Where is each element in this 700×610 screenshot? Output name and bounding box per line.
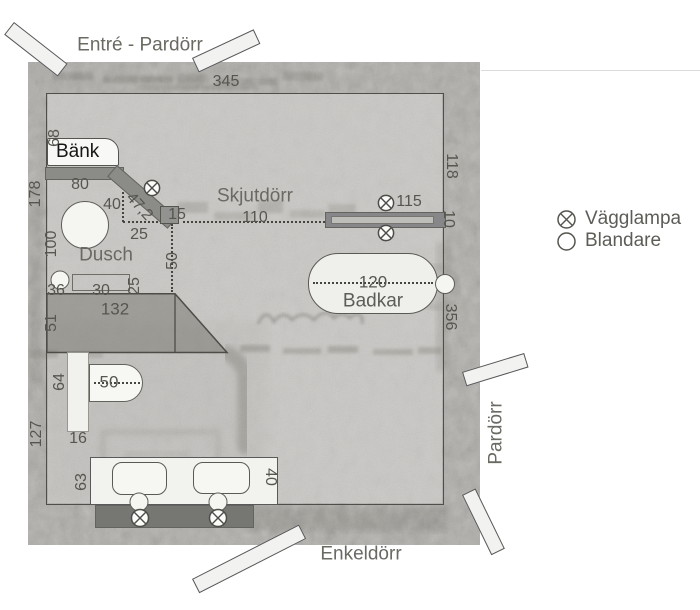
- dim-356: 356: [442, 304, 458, 331]
- dim-115: 115: [396, 194, 422, 210]
- dim-127: 127: [29, 421, 45, 448]
- right-door-label: Pardörr: [487, 401, 506, 464]
- toilet-cistern: [67, 352, 89, 432]
- dim-80: 80: [71, 177, 89, 193]
- dim-25-side: 25: [127, 277, 143, 295]
- dim-25: 25: [130, 227, 148, 243]
- legend-wall-lamp-label: Vägglampa: [585, 208, 681, 230]
- entrance-label: Entré - Pardörr: [77, 36, 203, 55]
- legend-mixer-label: Blandare: [585, 230, 661, 252]
- vanity-backsplash: [95, 505, 254, 528]
- dim-345: 345: [213, 74, 240, 90]
- dim-line: [122, 192, 124, 222]
- dim-63: 63: [74, 473, 90, 491]
- mixer-icon: [557, 232, 576, 251]
- wall-lamp-icon: [557, 210, 576, 229]
- dim-120: 120: [359, 274, 387, 291]
- wall-lamp-icon: [378, 195, 395, 212]
- dim-10: 10: [440, 210, 456, 228]
- dim-16: 16: [69, 431, 87, 447]
- wall-lamp-icon: [378, 225, 395, 242]
- dim-100: 100: [44, 231, 60, 258]
- dim-68: 68: [47, 129, 63, 147]
- dim-36: 36: [47, 283, 65, 299]
- legend-mixer: Blandare: [557, 230, 661, 252]
- sliding-door-label: Skjutdörr: [217, 187, 293, 206]
- bottom-door-label: Enkeldörr: [320, 545, 401, 564]
- legend-wall-lamp: Vägglampa: [557, 208, 681, 230]
- shower-head: [61, 201, 109, 249]
- sink-right: [193, 462, 250, 494]
- bathtub-label: Badkar: [343, 292, 403, 311]
- dim-118: 118: [443, 153, 459, 179]
- shower-label: Dusch: [79, 246, 133, 265]
- dim-50-wc: 50: [100, 374, 119, 391]
- wall-lamp-icon: [144, 180, 161, 197]
- dim-64: 64: [52, 373, 68, 391]
- dim-40: 40: [103, 197, 121, 213]
- dim-178: 178: [28, 181, 44, 208]
- dim-132: 132: [101, 301, 129, 318]
- wall-lamp-icon: [209, 509, 228, 528]
- dim-51: 51: [44, 314, 60, 332]
- dim-50-niche: 50: [165, 252, 181, 270]
- platform-polygon: [46, 293, 229, 359]
- dim-15: 15: [168, 207, 186, 223]
- dim-40-vanity: 40: [262, 468, 278, 486]
- floorplan-page: Bänk 345 178: [0, 0, 700, 610]
- bathtub-mixer-circle: [435, 274, 455, 294]
- dim-110: 110: [242, 210, 268, 226]
- wall-lamp-icon: [131, 509, 150, 528]
- sink-left: [112, 462, 167, 495]
- dim-30: 30: [92, 283, 110, 299]
- sliding-door-leaf: [331, 216, 434, 224]
- divider-line: [481, 70, 700, 71]
